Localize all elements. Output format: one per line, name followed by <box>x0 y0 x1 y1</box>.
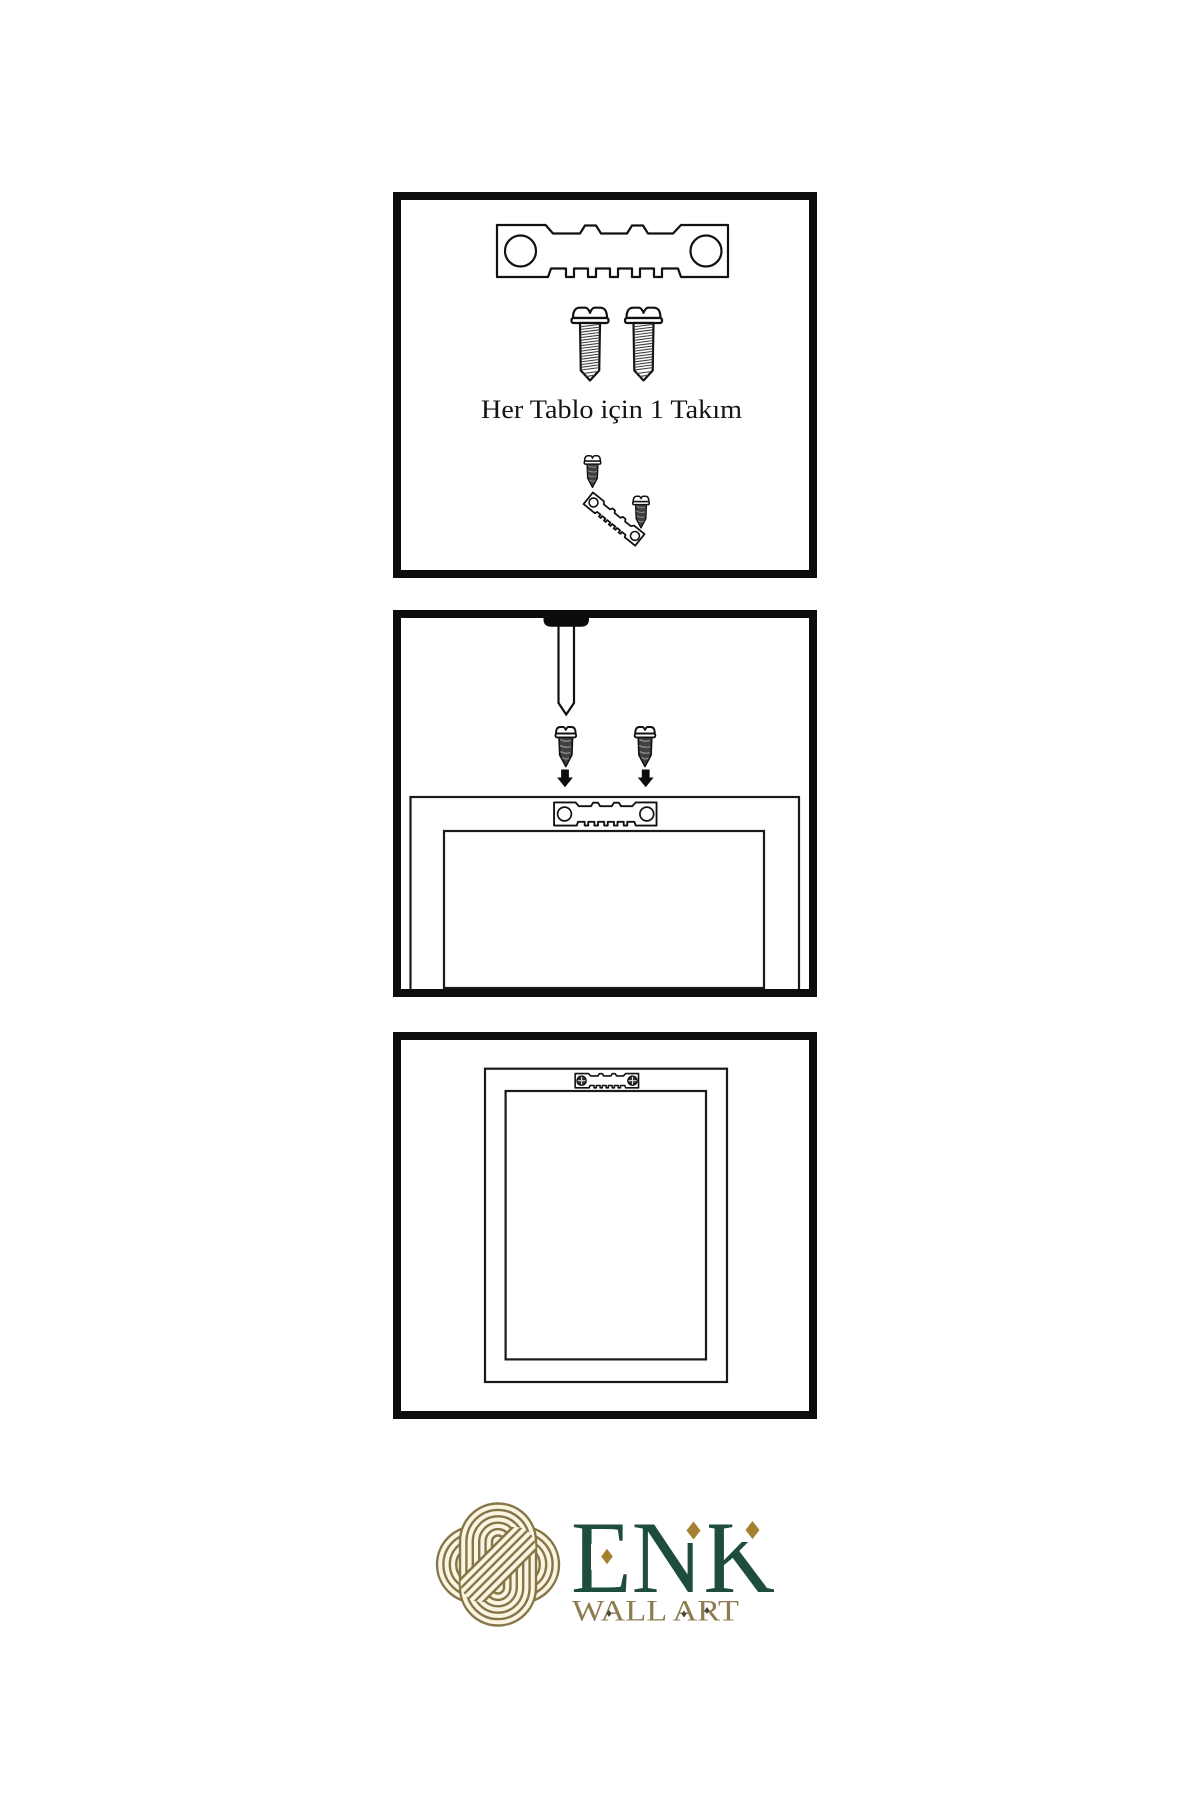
svg-text:Her Tablo için 1 Takım: Her Tablo için 1 Takım <box>481 394 742 424</box>
svg-text:WALL ART: WALL ART <box>572 1595 739 1628</box>
